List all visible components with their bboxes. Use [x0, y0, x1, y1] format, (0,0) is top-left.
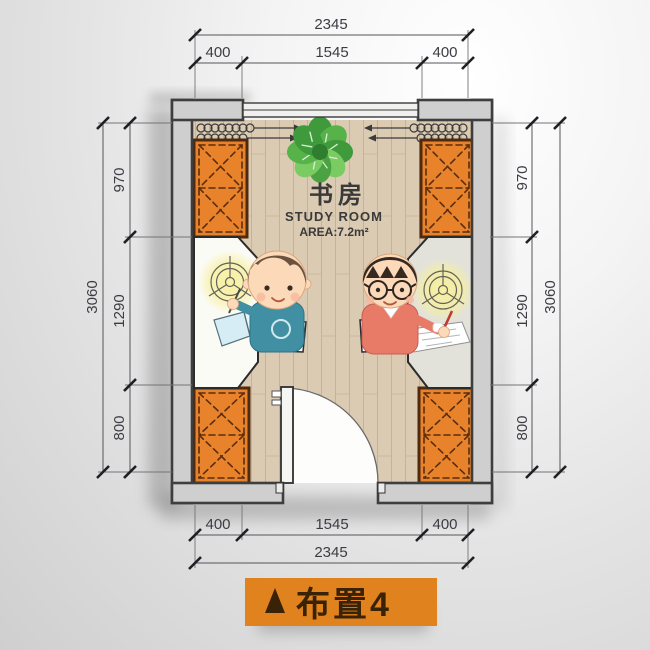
floor-plan-page: 书房 STUDY ROOM AREA:7.2m² 2345 — [0, 0, 650, 650]
door-handle-icon — [272, 391, 281, 397]
dimension-top: 2345 400 1545 400 — [189, 16, 474, 98]
dim-left-total: 3060 — [84, 280, 101, 313]
dim-left-seg2: 1290 — [111, 294, 128, 327]
room-area-label: AREA:7.2m² — [299, 225, 368, 239]
floor-plan-canvas: 书房 STUDY ROOM AREA:7.2m² 2345 — [0, 0, 650, 650]
dim-right-total: 3060 — [542, 280, 559, 313]
dim-top-seg1: 400 — [205, 44, 230, 61]
dim-right-seg3: 800 — [514, 415, 531, 440]
dim-left-seg1: 970 — [111, 167, 128, 192]
wall-top-left — [172, 100, 243, 120]
dim-top-seg3: 400 — [432, 44, 457, 61]
window-icon — [243, 103, 418, 117]
dim-bottom-seg2: 1545 — [315, 516, 348, 533]
dim-bottom-total: 2345 — [314, 544, 347, 561]
wardrobe-lower-right — [419, 388, 474, 483]
dim-top-seg2: 1545 — [315, 44, 348, 61]
dim-right-seg2: 1290 — [514, 294, 531, 327]
layout-banner: 布置4 — [245, 578, 437, 632]
wall-bottom-left — [172, 483, 283, 503]
dim-bottom-seg3: 400 — [432, 516, 457, 533]
room-title-cn: 书房 — [309, 181, 367, 209]
dim-right-seg1: 970 — [514, 165, 531, 190]
room-title-en: STUDY ROOM — [285, 209, 383, 224]
desk-right — [408, 237, 475, 388]
banner-label: 布置4 — [296, 586, 392, 624]
wall-bottom-right — [378, 483, 492, 503]
wardrobe-upper-left — [194, 140, 247, 237]
dim-left-seg3: 800 — [111, 415, 128, 440]
door-frame-stop — [276, 483, 283, 493]
wall-left — [172, 100, 192, 503]
dim-bottom-seg1: 400 — [205, 516, 230, 533]
wall-right — [472, 100, 492, 503]
wardrobe-lower-left — [194, 388, 249, 483]
dim-top-total: 2345 — [314, 16, 347, 33]
wall-top-right — [418, 100, 492, 120]
door-frame-stop — [378, 483, 385, 493]
door-leaf — [281, 387, 293, 483]
wardrobe-upper-right — [421, 140, 474, 237]
